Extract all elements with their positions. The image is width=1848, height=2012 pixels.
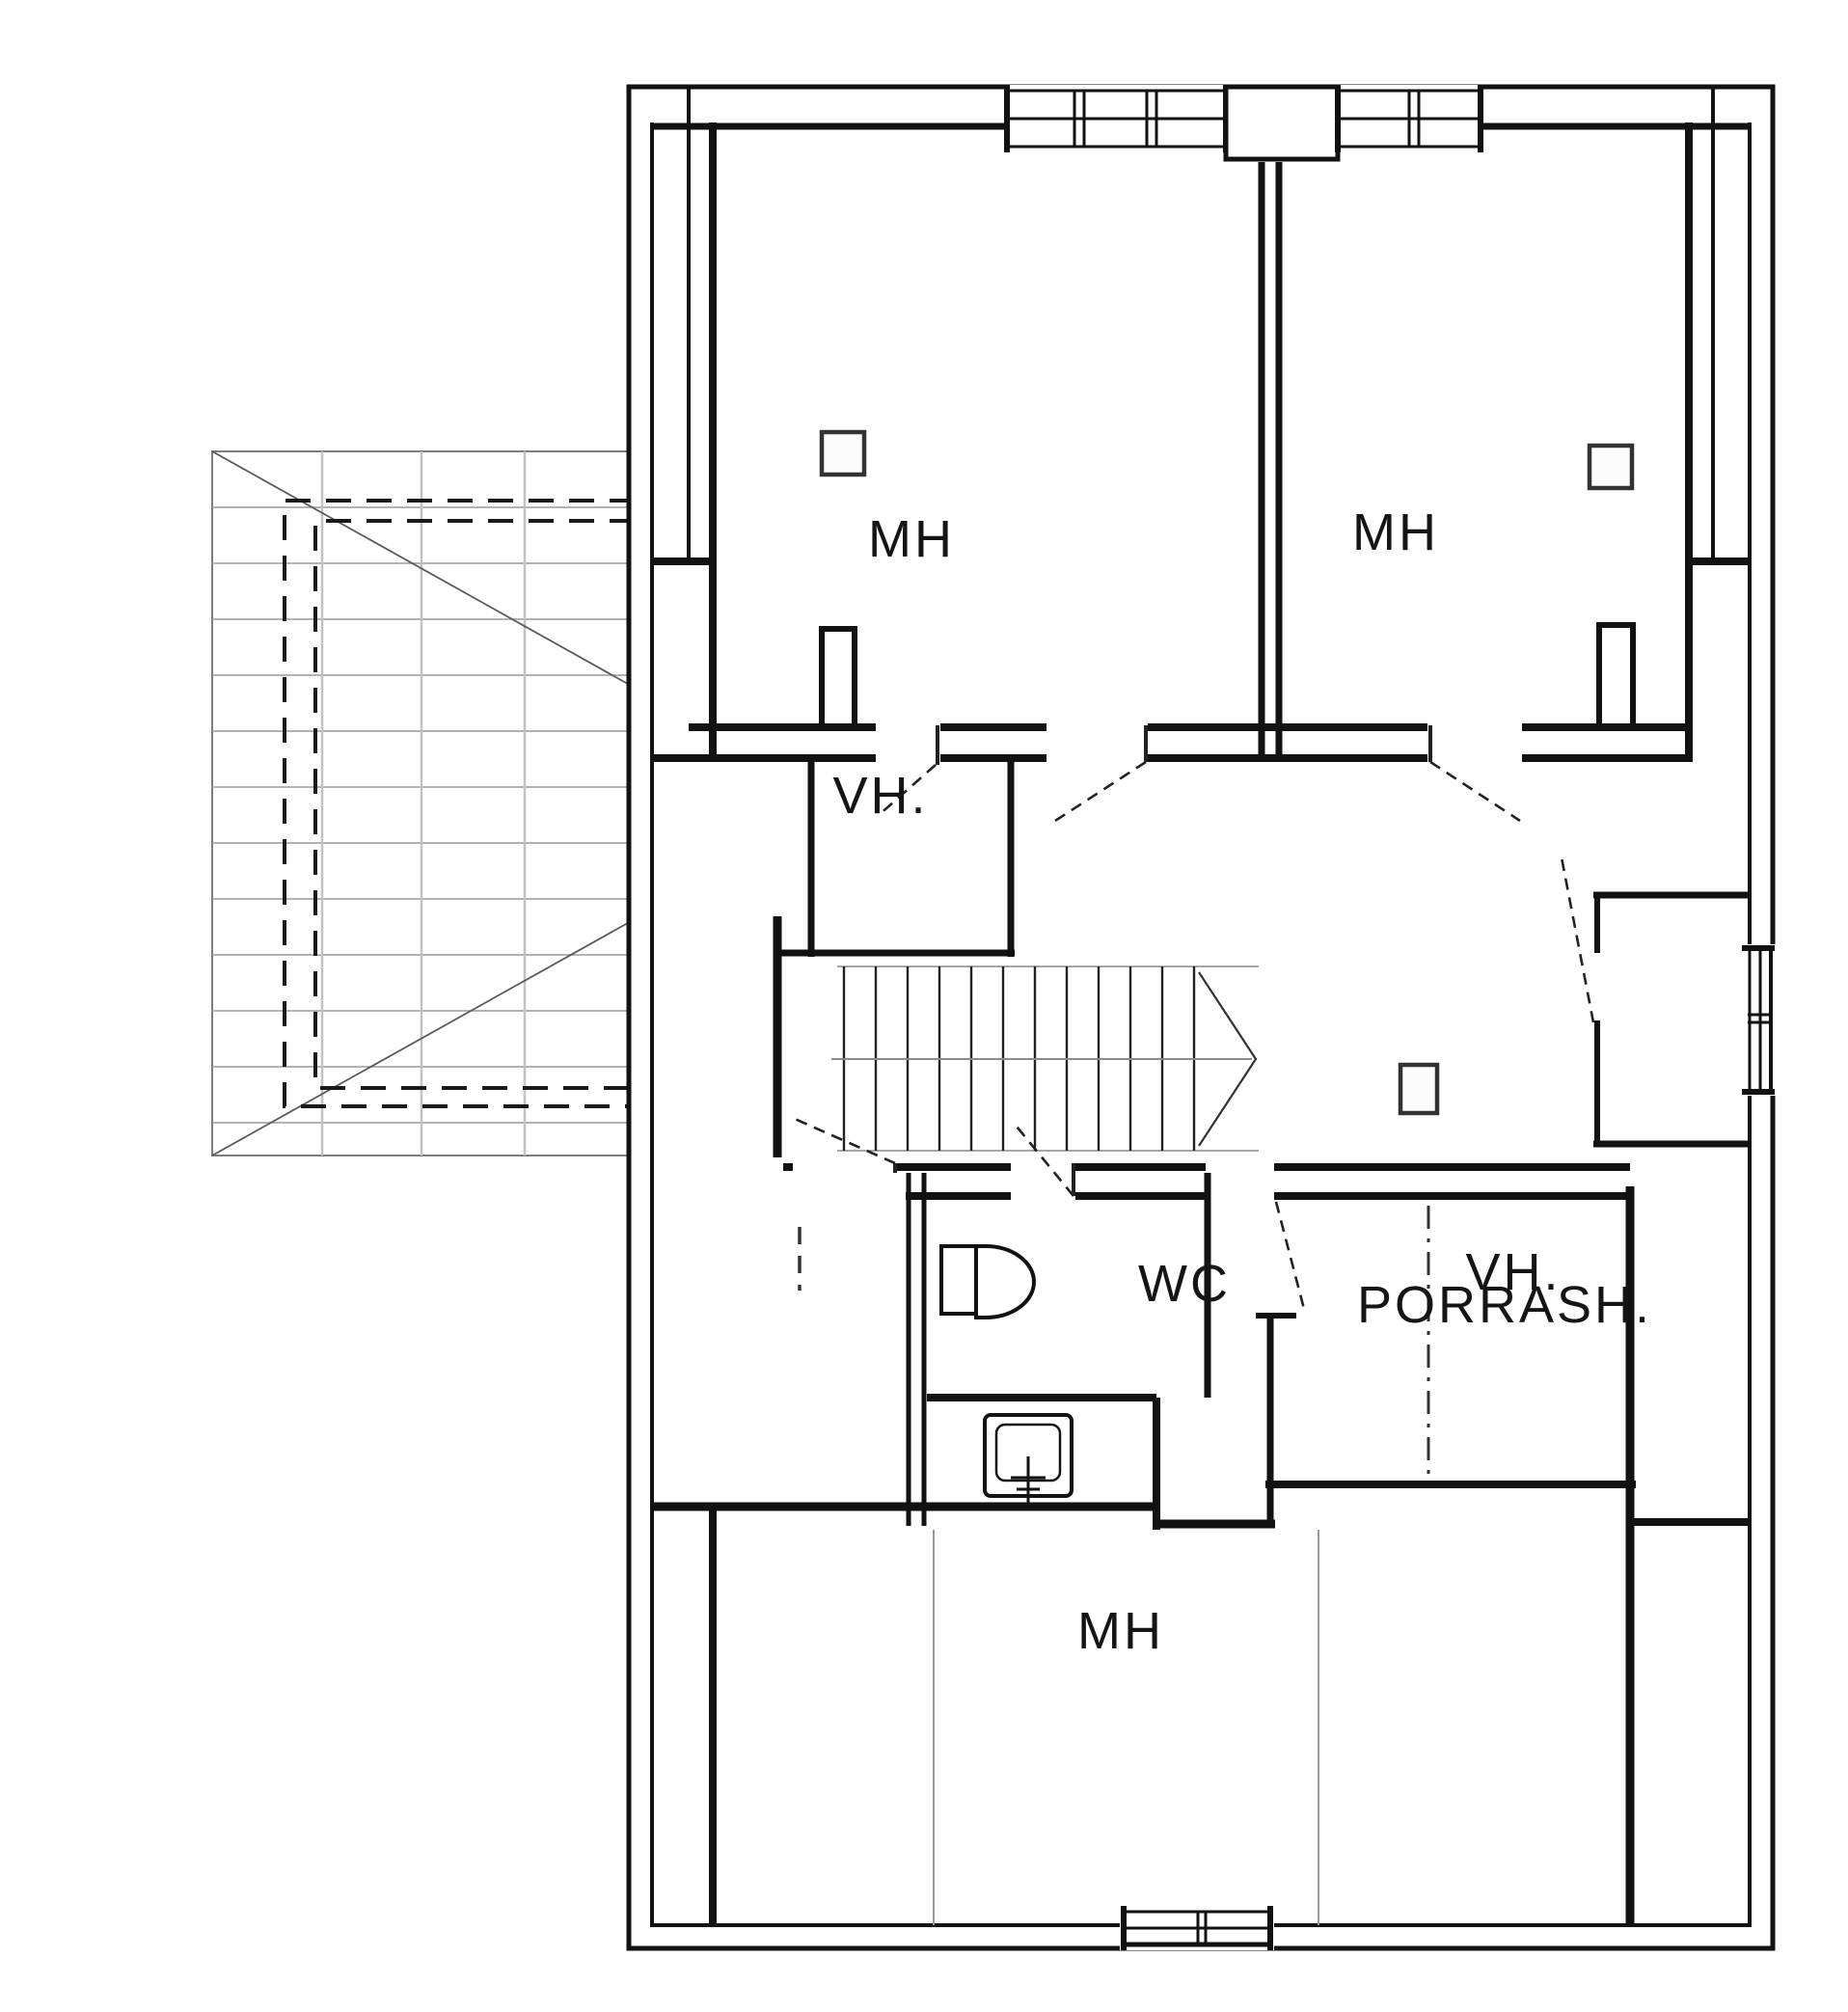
room-label-vh-top: VH. [832,767,928,825]
roof-plan [212,451,635,1156]
roof-horizontal-lines [212,507,635,1123]
hidden-wall-dashed-inner [315,521,635,1088]
exterior-wall-outer [629,87,1773,1948]
building-envelope [629,87,1773,1948]
window-pier [1226,87,1338,159]
window-top-right [1338,85,1481,152]
ceiling-box-mh-left [822,432,864,475]
floorplan-page: MH MH VH. PORRASH. WC VH. MH [0,0,1848,2012]
window-east [1742,944,1777,1096]
window-top-left [1007,85,1226,152]
ceiling-box-mh-right [1590,446,1632,488]
roof-outline [212,451,635,1156]
sink-icon [985,1415,1072,1505]
toilet-tank [941,1246,976,1314]
room-label-mh-bottom: MH [1077,1602,1164,1660]
ceiling-box-porrash [1400,1065,1437,1113]
room-label-mh-top-right: MH [1352,503,1439,561]
roof-hip-diagonals [212,451,635,1156]
floorplan-drawing: MH MH VH. PORRASH. WC VH. MH [0,0,1848,2012]
window-bottom [1120,1906,1274,1950]
toilet-icon [941,1246,1034,1318]
roof-vertical-lines [322,451,525,1156]
hidden-wall-dashed-outer [285,501,635,1106]
room-label-vh-bottom: VH. [1465,1243,1561,1301]
room-label-wc: WC [1138,1255,1231,1313]
room-label-mh-top-left: MH [868,510,955,568]
